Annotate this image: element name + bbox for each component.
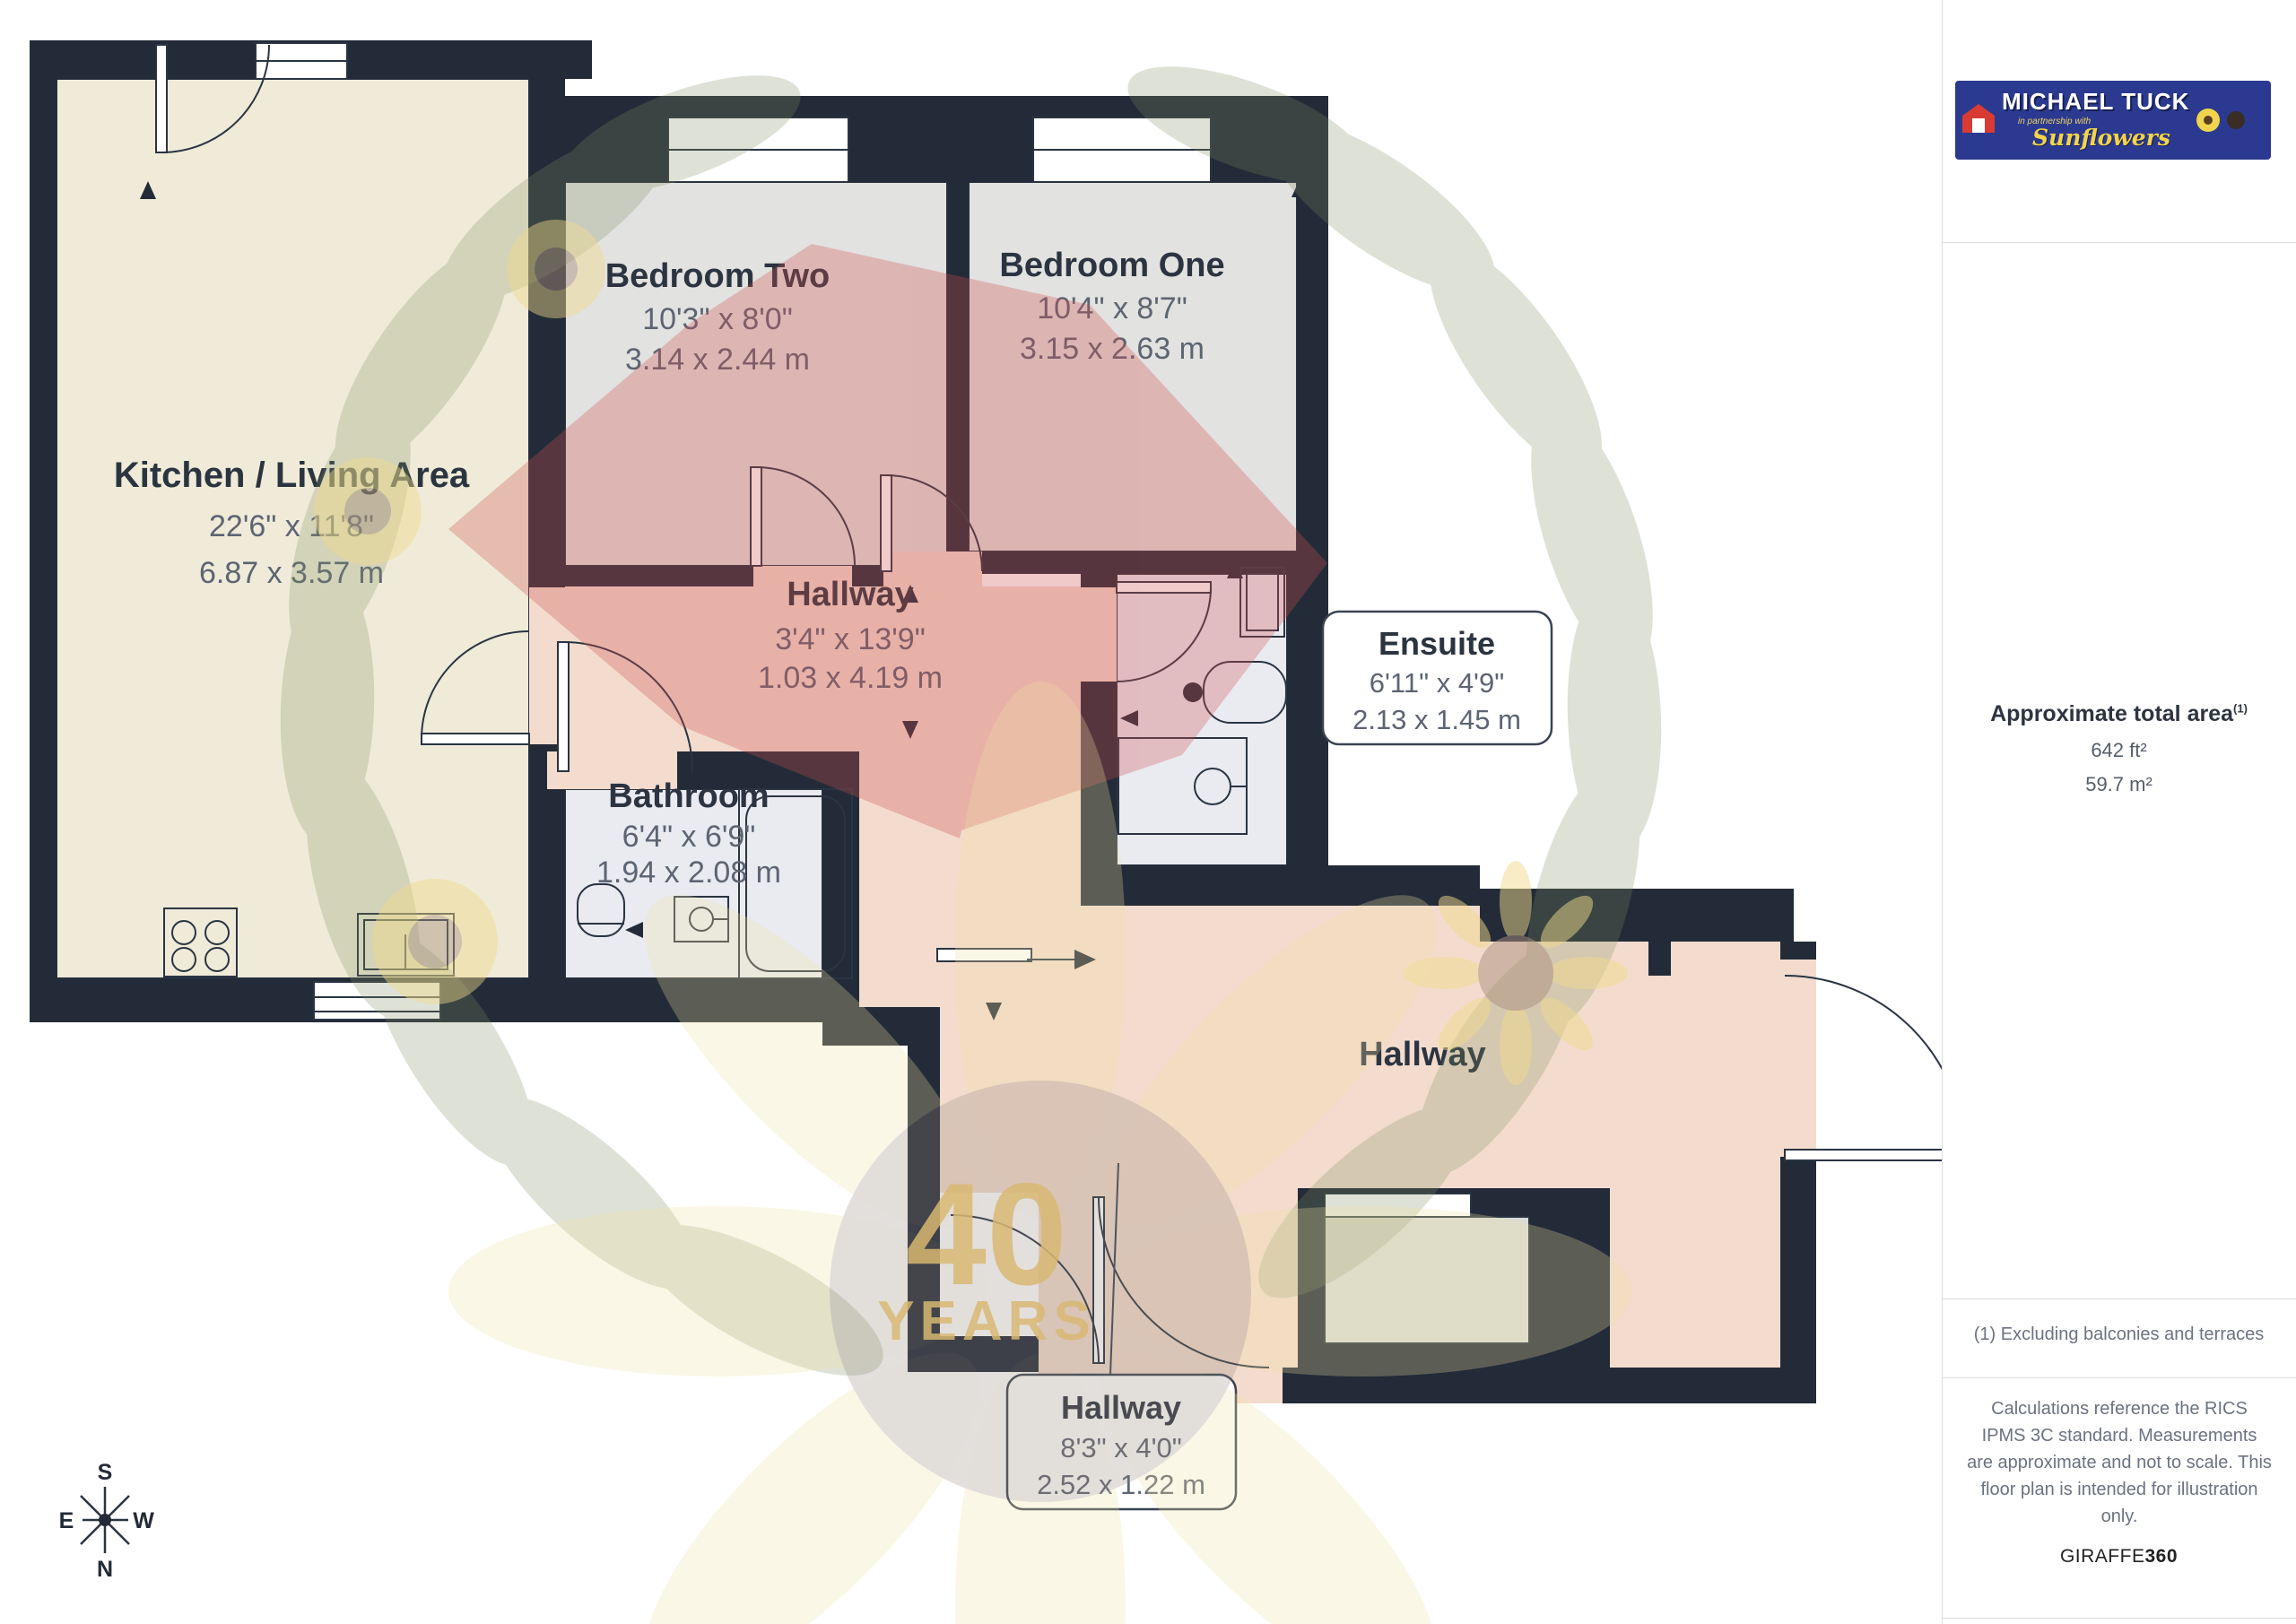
room-label-bedroom-one: Bedroom One <box>999 247 1224 284</box>
area-imperial: 642 ft² <box>1942 739 2296 762</box>
approx-area-title-text: Approximate total area <box>1990 701 2233 726</box>
wall-segment <box>1780 942 1816 960</box>
wall-segment <box>1648 942 1671 976</box>
compass-west: W <box>133 1508 154 1533</box>
room-dim-metric: 1.94 x 2.08 m <box>596 855 781 890</box>
provider-logo: GIRAFFE360 <box>1942 1546 2296 1568</box>
compass-east: E <box>59 1508 74 1533</box>
approx-area-title: Approximate total area(1) <box>1942 701 2296 727</box>
room-label-ensuite: Ensuite <box>1378 625 1495 662</box>
sidebar-divider <box>1942 242 2296 243</box>
room-dim-imperial: 6'11" x 4'9" <box>1370 667 1504 699</box>
floorplan-canvas: Kitchen / Living Area 22'6" x 11'8" 6.87… <box>0 0 1942 1624</box>
ensuite-callout: Ensuite 6'11" x 4'9" 2.13 x 1.45 m <box>1323 612 1552 744</box>
sidebar-divider <box>1942 1618 2296 1619</box>
logo-script-text: Sunflowers <box>2032 126 2189 150</box>
sidebar-divider <box>1942 1377 2296 1378</box>
sunflower-icon <box>507 220 605 318</box>
sunflower-icon <box>372 879 498 1004</box>
wall-segment <box>529 751 547 789</box>
logo-brand-text: MICHAEL TUCK <box>2002 90 2189 114</box>
area-footnote: (1) Excluding balconies and terraces <box>1942 1324 2296 1345</box>
floorplan-page: Kitchen / Living Area 22'6" x 11'8" 6.87… <box>0 0 2296 1624</box>
wall-segment <box>30 40 57 1022</box>
forty-years-watermark: 40 YEARS <box>877 1153 1096 1352</box>
watermark-years: YEARS <box>877 1290 1096 1352</box>
agency-logo: MICHAEL TUCK in partnership with Sunflow… <box>1955 81 2271 160</box>
provider-suffix: 360 <box>2144 1546 2178 1567</box>
sunflower-icon <box>2196 109 2220 132</box>
house-icon <box>1962 104 1995 137</box>
compass-north: N <box>97 1557 113 1582</box>
area-metric: 59.7 m² <box>1942 773 2296 796</box>
approx-area-footnote-mark: (1) <box>2233 702 2248 716</box>
provider-name: GIRAFFE <box>2060 1546 2145 1567</box>
compass-south: S <box>98 1460 113 1485</box>
compass-rose: S N E W <box>59 1460 155 1582</box>
room-dim-metric: 2.13 x 1.45 m <box>1352 704 1521 735</box>
badge-icon <box>2227 111 2245 129</box>
sidebar-left-border <box>1942 0 1943 1624</box>
sunflower-icon <box>314 457 422 565</box>
room-label-bathroom: Bathroom <box>608 777 769 815</box>
disclaimer-text: Calculations reference the RICS IPMS 3C … <box>1967 1395 2272 1530</box>
sidebar-divider <box>1942 1298 2296 1299</box>
room-dim-imperial: 6'4" x 6'9" <box>622 820 756 854</box>
wall-segment <box>1780 1157 1816 1403</box>
doorway <box>1780 960 1816 1157</box>
